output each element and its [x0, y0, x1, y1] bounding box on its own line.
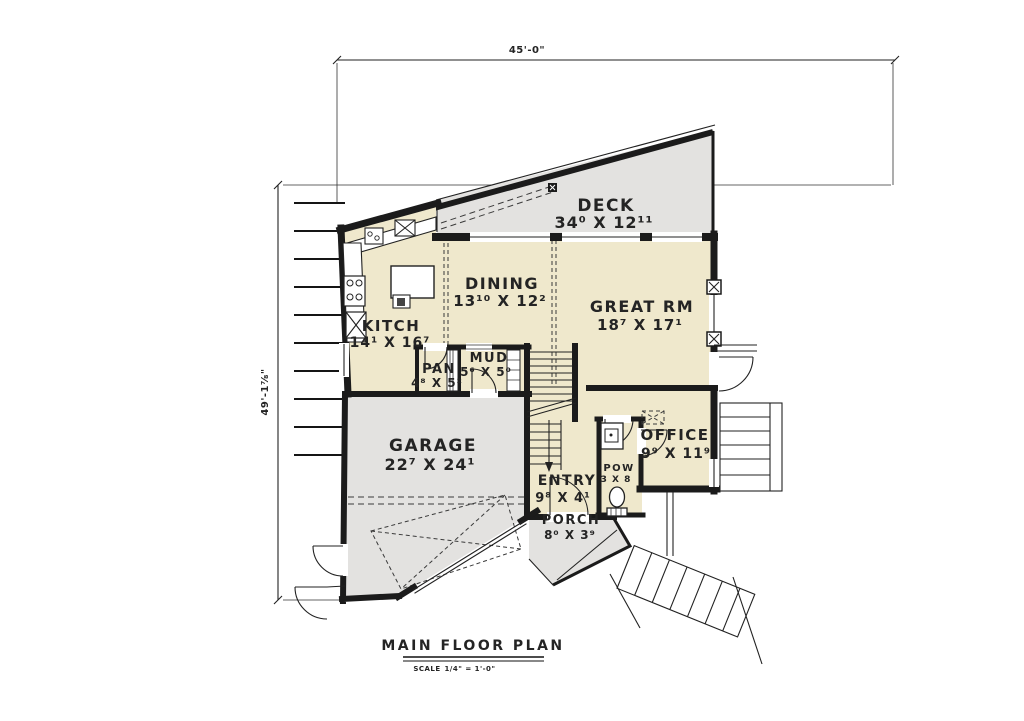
title-block: MAIN FLOOR PLAN SCALE 1/4" = 1'-0"	[381, 638, 564, 673]
cooktop-icon	[365, 228, 383, 244]
porch-label: PORCH	[542, 513, 601, 528]
powder-dims: 3 X 8	[601, 475, 632, 485]
range-icon	[344, 276, 365, 306]
great-rm-dims: 18⁷ X 17¹	[597, 316, 683, 334]
plan-title: MAIN FLOOR PLAN	[381, 638, 564, 654]
mud-label: MUD	[470, 351, 509, 366]
dining-label: DINING	[465, 274, 539, 293]
mud-dims: 5⁶ X 5⁰	[460, 365, 512, 379]
top-dimension-label: 45'-0"	[509, 45, 545, 56]
kitchen-dims: 14¹ X 16⁷	[350, 335, 431, 351]
office-dims: 9⁹ X 11⁹	[641, 446, 711, 462]
hillside-contours	[294, 203, 345, 455]
dining-dims: 13¹⁰ X 12²	[453, 292, 546, 310]
site-gate-arc	[295, 586, 345, 619]
deck-post-icon	[548, 183, 557, 192]
entry-dims: 9⁸ X 4¹	[535, 491, 591, 506]
floor-plan-sheet: 45'-0" 49'-1⅞"	[0, 0, 1024, 721]
scale-value: 1/4" = 1'-0"	[444, 665, 495, 673]
deck-dims: 34⁰ X 12¹¹	[554, 213, 653, 232]
scale-label: SCALE	[413, 665, 440, 673]
exterior-stairs-right	[720, 403, 782, 491]
office-label: OFFICE	[640, 426, 709, 444]
garage-label: GARAGE	[389, 436, 477, 456]
pantry-dims: 4⁸ X 5²	[411, 376, 463, 390]
entry-label: ENTRY	[538, 473, 596, 489]
vanity-sink-icon	[601, 423, 623, 449]
right-exterior-door-arc	[714, 345, 757, 391]
porch-dims: 8⁰ X 3⁹	[544, 528, 596, 542]
kitchen-label: KITCH	[362, 317, 421, 335]
exterior-stairs-bottom	[610, 492, 762, 664]
floor-plan-drawing: 45'-0" 49'-1⅞"	[0, 0, 1024, 721]
garage-dims: 22⁷ X 24¹	[384, 455, 475, 474]
great-rm-label: GREAT RM	[590, 297, 694, 316]
pantry-label: PAN	[422, 362, 456, 377]
powder-label: POW	[603, 463, 634, 474]
left-dimension-label: 49'-1⅞"	[260, 368, 271, 415]
counter-sink-icon	[395, 220, 415, 236]
